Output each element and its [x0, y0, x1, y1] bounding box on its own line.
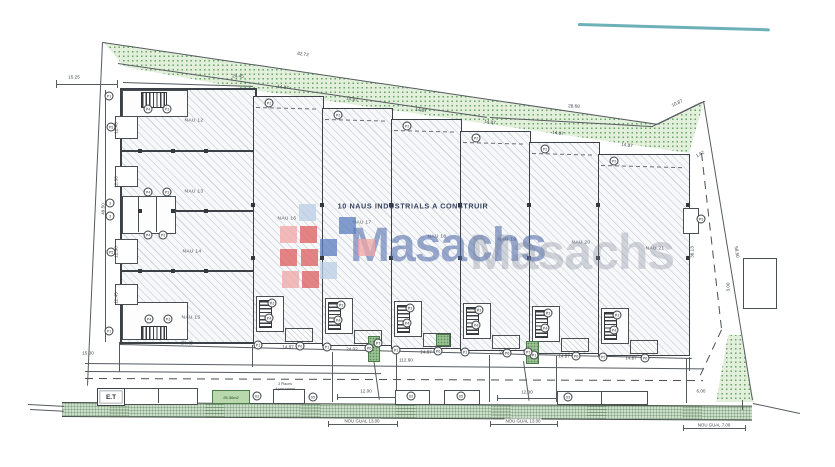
reference-marker-P6: P6	[572, 352, 581, 361]
reference-marker-P3: P3	[475, 306, 484, 315]
dimension-label: 28.68	[568, 103, 580, 109]
column-dot	[171, 209, 175, 213]
transformer-station-label: E.T	[106, 394, 116, 401]
column-dot	[251, 256, 255, 260]
reference-marker-P3: P3	[163, 188, 172, 197]
reference-marker-P5: P5	[107, 248, 116, 257]
reference-marker-P2: P2	[403, 122, 412, 131]
reference-marker-P5: P5	[697, 215, 706, 224]
reference-marker-P6: P6	[365, 344, 374, 353]
reference-marker-P3: P3	[544, 309, 553, 318]
reference-marker-P2: P2	[541, 145, 550, 154]
dimension-label: 15.25	[68, 75, 80, 80]
reference-marker-P6: P6	[296, 342, 305, 351]
loading-canopy	[561, 338, 589, 352]
column-dot	[138, 149, 142, 153]
tick-line-0	[332, 352, 333, 402]
loading-canopy	[630, 340, 658, 354]
gual-label: NOU GUAL 13.00	[344, 419, 381, 424]
watermark-ghost-text: Masachs	[470, 223, 674, 281]
plot-line-10	[57, 84, 118, 85]
dim-tick	[328, 421, 329, 427]
column-dot	[171, 269, 175, 273]
column-dot	[320, 256, 324, 260]
gual-label: NOU GUAL 13.00	[505, 419, 542, 424]
reference-marker-P5: P5	[107, 123, 116, 132]
dimension-label: 14.87	[625, 355, 637, 360]
reference-marker-3: 3	[106, 212, 115, 221]
reference-marker-P7: P7	[524, 348, 533, 357]
scan-artifact-line	[578, 23, 770, 31]
column-dot	[171, 149, 175, 153]
reference-marker-P1: P1	[461, 348, 470, 357]
reference-marker-P4: P4	[144, 105, 153, 114]
tick-line-5	[742, 400, 743, 410]
dim-tick	[557, 395, 558, 401]
watermark-logo-square	[280, 226, 297, 243]
dimension-label: 10.87	[671, 98, 684, 108]
plot-line-5	[28, 404, 64, 407]
transformer-station-box: E.T	[97, 388, 125, 406]
dim-tick	[557, 421, 558, 427]
dimension-label: 36.13	[690, 246, 695, 258]
reference-marker-65: 65	[457, 392, 466, 401]
street-rect-divider	[158, 388, 159, 403]
dim-tick	[683, 425, 684, 431]
column-dot	[320, 203, 324, 207]
property-dashed-line	[85, 378, 703, 382]
reference-marker-P3: P3	[163, 105, 172, 114]
reference-marker-63: 63	[253, 392, 262, 401]
loading-canopy	[285, 328, 313, 342]
parking-note: 3 Places	[278, 382, 292, 386]
gual-dim-line	[497, 398, 557, 399]
plot-line-14	[85, 371, 381, 374]
plot-line-4	[753, 403, 800, 414]
dimension-label: 14.87	[484, 119, 496, 126]
reference-marker-65: 65	[309, 393, 318, 402]
dimension-label: 12.00	[360, 389, 372, 394]
parking-note: Aparcament	[275, 387, 294, 391]
watermark-logo-square	[320, 262, 337, 279]
column-dot	[527, 203, 531, 207]
dimension-label: 14.87	[558, 353, 570, 358]
reference-marker-P3: P3	[164, 315, 173, 324]
reference-marker-P3: P3	[159, 231, 168, 240]
nave-label: NAU 15	[182, 316, 201, 321]
tick-line-4	[686, 358, 687, 403]
reference-marker-P4: P4	[541, 324, 550, 333]
reference-marker-P4: P4	[265, 314, 274, 323]
dimension-label: 24.45	[181, 340, 193, 345]
planter	[436, 334, 450, 346]
reference-marker-3: 3	[106, 199, 115, 208]
reference-marker-P4: P4	[144, 231, 153, 240]
reference-marker-P1: P1	[254, 341, 263, 350]
dim-tick	[497, 395, 498, 401]
street-rect	[273, 389, 305, 404]
dimension-label: 12.00	[521, 390, 533, 395]
gual-dim-line	[337, 397, 395, 398]
reference-marker-P1: P1	[323, 343, 332, 352]
dimension-label: 12.30	[114, 176, 119, 188]
nave-office	[122, 196, 176, 234]
margin-rect	[743, 258, 777, 309]
reference-marker-P7: P7	[374, 339, 383, 348]
watermark-logo-square	[302, 271, 319, 288]
watermark-logo-square	[299, 204, 316, 221]
boundary-dashed-diagonal	[698, 329, 722, 378]
reference-marker-P1: P1	[105, 327, 114, 336]
watermark-logo-square	[282, 271, 299, 288]
reference-marker-P2: P2	[334, 111, 343, 120]
office-divider	[156, 196, 157, 232]
nave-label: NAU 13	[185, 190, 204, 195]
nave-label: NAU 16	[278, 217, 297, 222]
reference-marker-P3: P3	[337, 301, 346, 310]
nave-label: NAU 14	[183, 250, 202, 255]
column-dot	[251, 203, 255, 207]
dimension-label: 14.87	[420, 349, 432, 354]
watermark-logo-square	[280, 249, 297, 266]
column-dot	[596, 203, 600, 207]
dimension-label: 14.87	[282, 344, 294, 349]
dim-tick	[745, 425, 746, 431]
reference-marker-P6: P6	[434, 347, 443, 356]
watermark-logo-square	[300, 226, 317, 243]
reference-marker-P4: P4	[403, 319, 412, 328]
gual-label: NOU GUAL 7.00	[697, 423, 732, 428]
gual-dim-line	[328, 424, 397, 425]
dim-tick	[490, 421, 491, 427]
reference-marker-P4: P4	[145, 315, 154, 324]
dimension-label: 58.50	[734, 246, 741, 258]
gual-dim-line	[683, 428, 745, 429]
gual-dim-line	[490, 424, 557, 425]
column-dot	[138, 269, 142, 273]
watermark-logo-square	[339, 217, 356, 234]
reference-marker-P1: P1	[105, 92, 114, 101]
dimension-label: 24.02	[346, 347, 358, 352]
reference-marker-P2: P2	[472, 134, 481, 143]
reference-marker-P2: P2	[265, 99, 274, 108]
reference-marker-P3: P3	[268, 299, 277, 308]
loading-canopy	[492, 335, 520, 349]
reference-marker-P3: P3	[613, 311, 622, 320]
office-divider	[138, 196, 139, 232]
dim-tick	[395, 394, 396, 400]
boundary-dashed-diagonal	[701, 153, 723, 330]
reference-marker-P4: P4	[144, 188, 153, 197]
dimension-label: 82.72	[297, 51, 309, 58]
reference-marker-P4: P4	[334, 316, 343, 325]
site-plan-drawing: 25.30m2NAU 12NAU 13NAU 14NAU 15NAU 16NAU…	[0, 0, 835, 467]
dimension-label: 3.00	[726, 283, 731, 292]
reference-marker-P1: P1	[392, 346, 401, 355]
reference-marker-P2: P2	[610, 157, 619, 166]
dimension-label: 49.50	[101, 203, 106, 215]
reference-marker-P4: P4	[610, 326, 619, 335]
reference-marker-63: 63	[564, 393, 573, 402]
plan-title-note: 10 NAUS INDUSTRIALS A CONSTRUIR	[338, 202, 489, 211]
nave-label: NAU 12	[185, 119, 204, 124]
dimension-label: 24.45	[232, 73, 244, 78]
dimension-label: 1.62	[695, 150, 705, 159]
plot-line-13	[85, 363, 703, 369]
tick-line-10	[56, 80, 57, 88]
street-rect	[601, 391, 648, 405]
dimension-label: 6.00	[697, 389, 706, 394]
tick-line-2	[489, 355, 490, 402]
reference-marker-P3: P3	[406, 304, 415, 313]
reference-marker-P4: P4	[472, 321, 481, 330]
dimension-label: 12.45	[114, 292, 119, 304]
street-rect	[123, 388, 198, 405]
green-area-box: 25.30m2	[212, 390, 250, 404]
watermark-logo-square	[301, 249, 318, 266]
dimension-label: 15.00	[82, 351, 94, 356]
column-dot	[686, 203, 690, 207]
column-dot	[204, 209, 208, 213]
column-dot	[204, 269, 208, 273]
reference-marker-P6: P6	[503, 349, 512, 358]
dim-tick	[337, 394, 338, 400]
watermark-logo-square	[320, 239, 337, 256]
dimension-label: 14.87	[552, 130, 564, 137]
column-dot	[204, 149, 208, 153]
reference-marker-63: 63	[407, 392, 416, 401]
stair-symbol	[141, 326, 167, 340]
watermark-logo-square	[358, 239, 375, 256]
reference-marker-P6: P6	[641, 354, 650, 363]
tick-line-8	[689, 357, 690, 371]
dimension-label: 14.87	[621, 142, 633, 149]
dimension-label: 112.60	[399, 358, 413, 363]
tick-line-11	[117, 80, 118, 88]
tick-line-7	[252, 345, 253, 367]
plot-line-6	[30, 409, 64, 412]
reference-marker-P1: P1	[599, 353, 608, 362]
dim-tick	[397, 421, 398, 427]
column-dot	[138, 209, 142, 213]
tick-line-6	[119, 342, 120, 372]
